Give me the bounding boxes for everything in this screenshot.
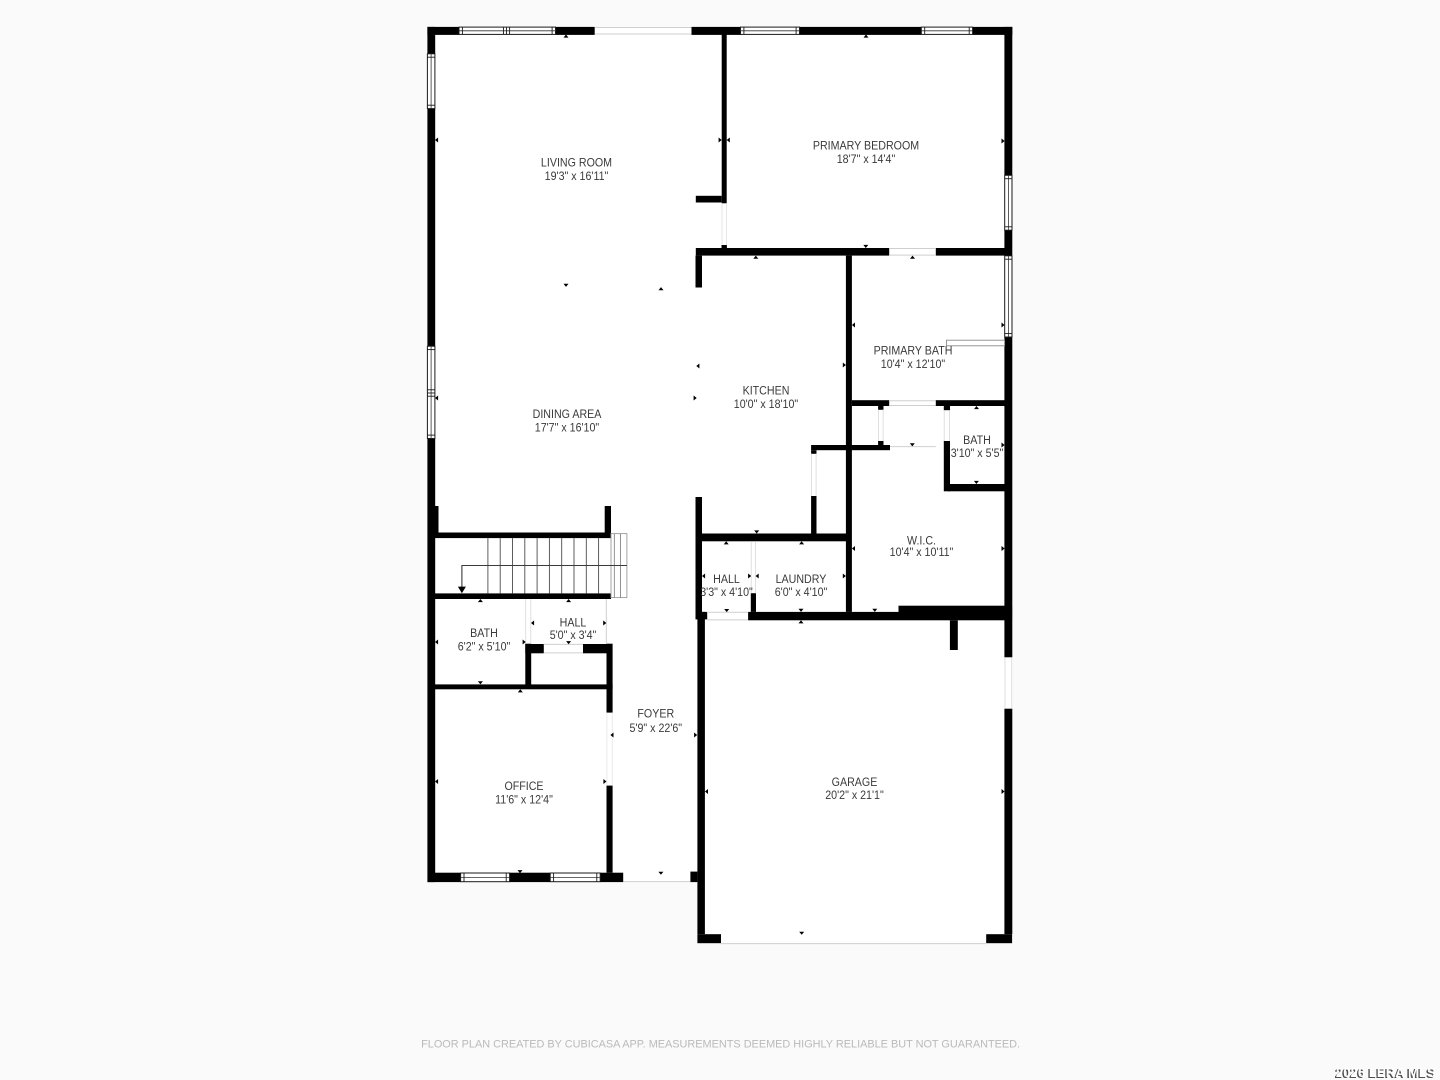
svg-text:PRIMARY BEDROOM: PRIMARY BEDROOM <box>813 140 919 153</box>
svg-text:10'4" x 10'11": 10'4" x 10'11" <box>890 547 954 560</box>
svg-text:HALL: HALL <box>713 574 740 587</box>
svg-text:3'10" x 5'5": 3'10" x 5'5" <box>951 448 1004 461</box>
svg-text:FOYER: FOYER <box>637 708 674 721</box>
svg-text:OFFICE: OFFICE <box>504 781 543 794</box>
svg-text:17'7" x 16'10": 17'7" x 16'10" <box>535 422 599 435</box>
svg-text:5'0" x 3'4": 5'0" x 3'4" <box>550 630 597 643</box>
svg-text:11'6" x 12'4": 11'6" x 12'4" <box>495 794 553 807</box>
svg-text:LIVING ROOM: LIVING ROOM <box>541 157 612 170</box>
svg-text:3'3" x 4'10": 3'3" x 4'10" <box>700 587 753 600</box>
svg-text:BATH: BATH <box>470 628 498 641</box>
svg-text:HALL: HALL <box>560 617 587 630</box>
svg-text:2026 LERA MLS: 2026 LERA MLS <box>1336 1065 1436 1080</box>
svg-text:PRIMARY BATH: PRIMARY BATH <box>874 345 953 358</box>
svg-text:FLOOR PLAN CREATED BY CUBICASA: FLOOR PLAN CREATED BY CUBICASA APP. MEAS… <box>421 1039 1020 1051</box>
svg-text:KITCHEN: KITCHEN <box>743 385 790 398</box>
svg-text:6'2" x 5'10": 6'2" x 5'10" <box>458 641 511 654</box>
svg-text:6'0" x 4'10": 6'0" x 4'10" <box>775 587 828 600</box>
svg-text:10'0" x 18'10": 10'0" x 18'10" <box>734 399 798 412</box>
svg-text:LAUNDRY: LAUNDRY <box>776 574 827 587</box>
svg-text:DINING AREA: DINING AREA <box>533 409 602 422</box>
svg-text:5'9" x 22'6": 5'9" x 22'6" <box>630 723 683 736</box>
svg-text:BATH: BATH <box>963 435 991 448</box>
svg-text:20'2" x 21'1": 20'2" x 21'1" <box>825 790 884 803</box>
svg-text:GARAGE: GARAGE <box>832 777 878 790</box>
svg-text:19'3" x 16'11": 19'3" x 16'11" <box>545 171 609 184</box>
svg-text:10'4" x 12'10": 10'4" x 12'10" <box>881 359 945 372</box>
svg-text:18'7" x 14'4": 18'7" x 14'4" <box>837 154 896 167</box>
